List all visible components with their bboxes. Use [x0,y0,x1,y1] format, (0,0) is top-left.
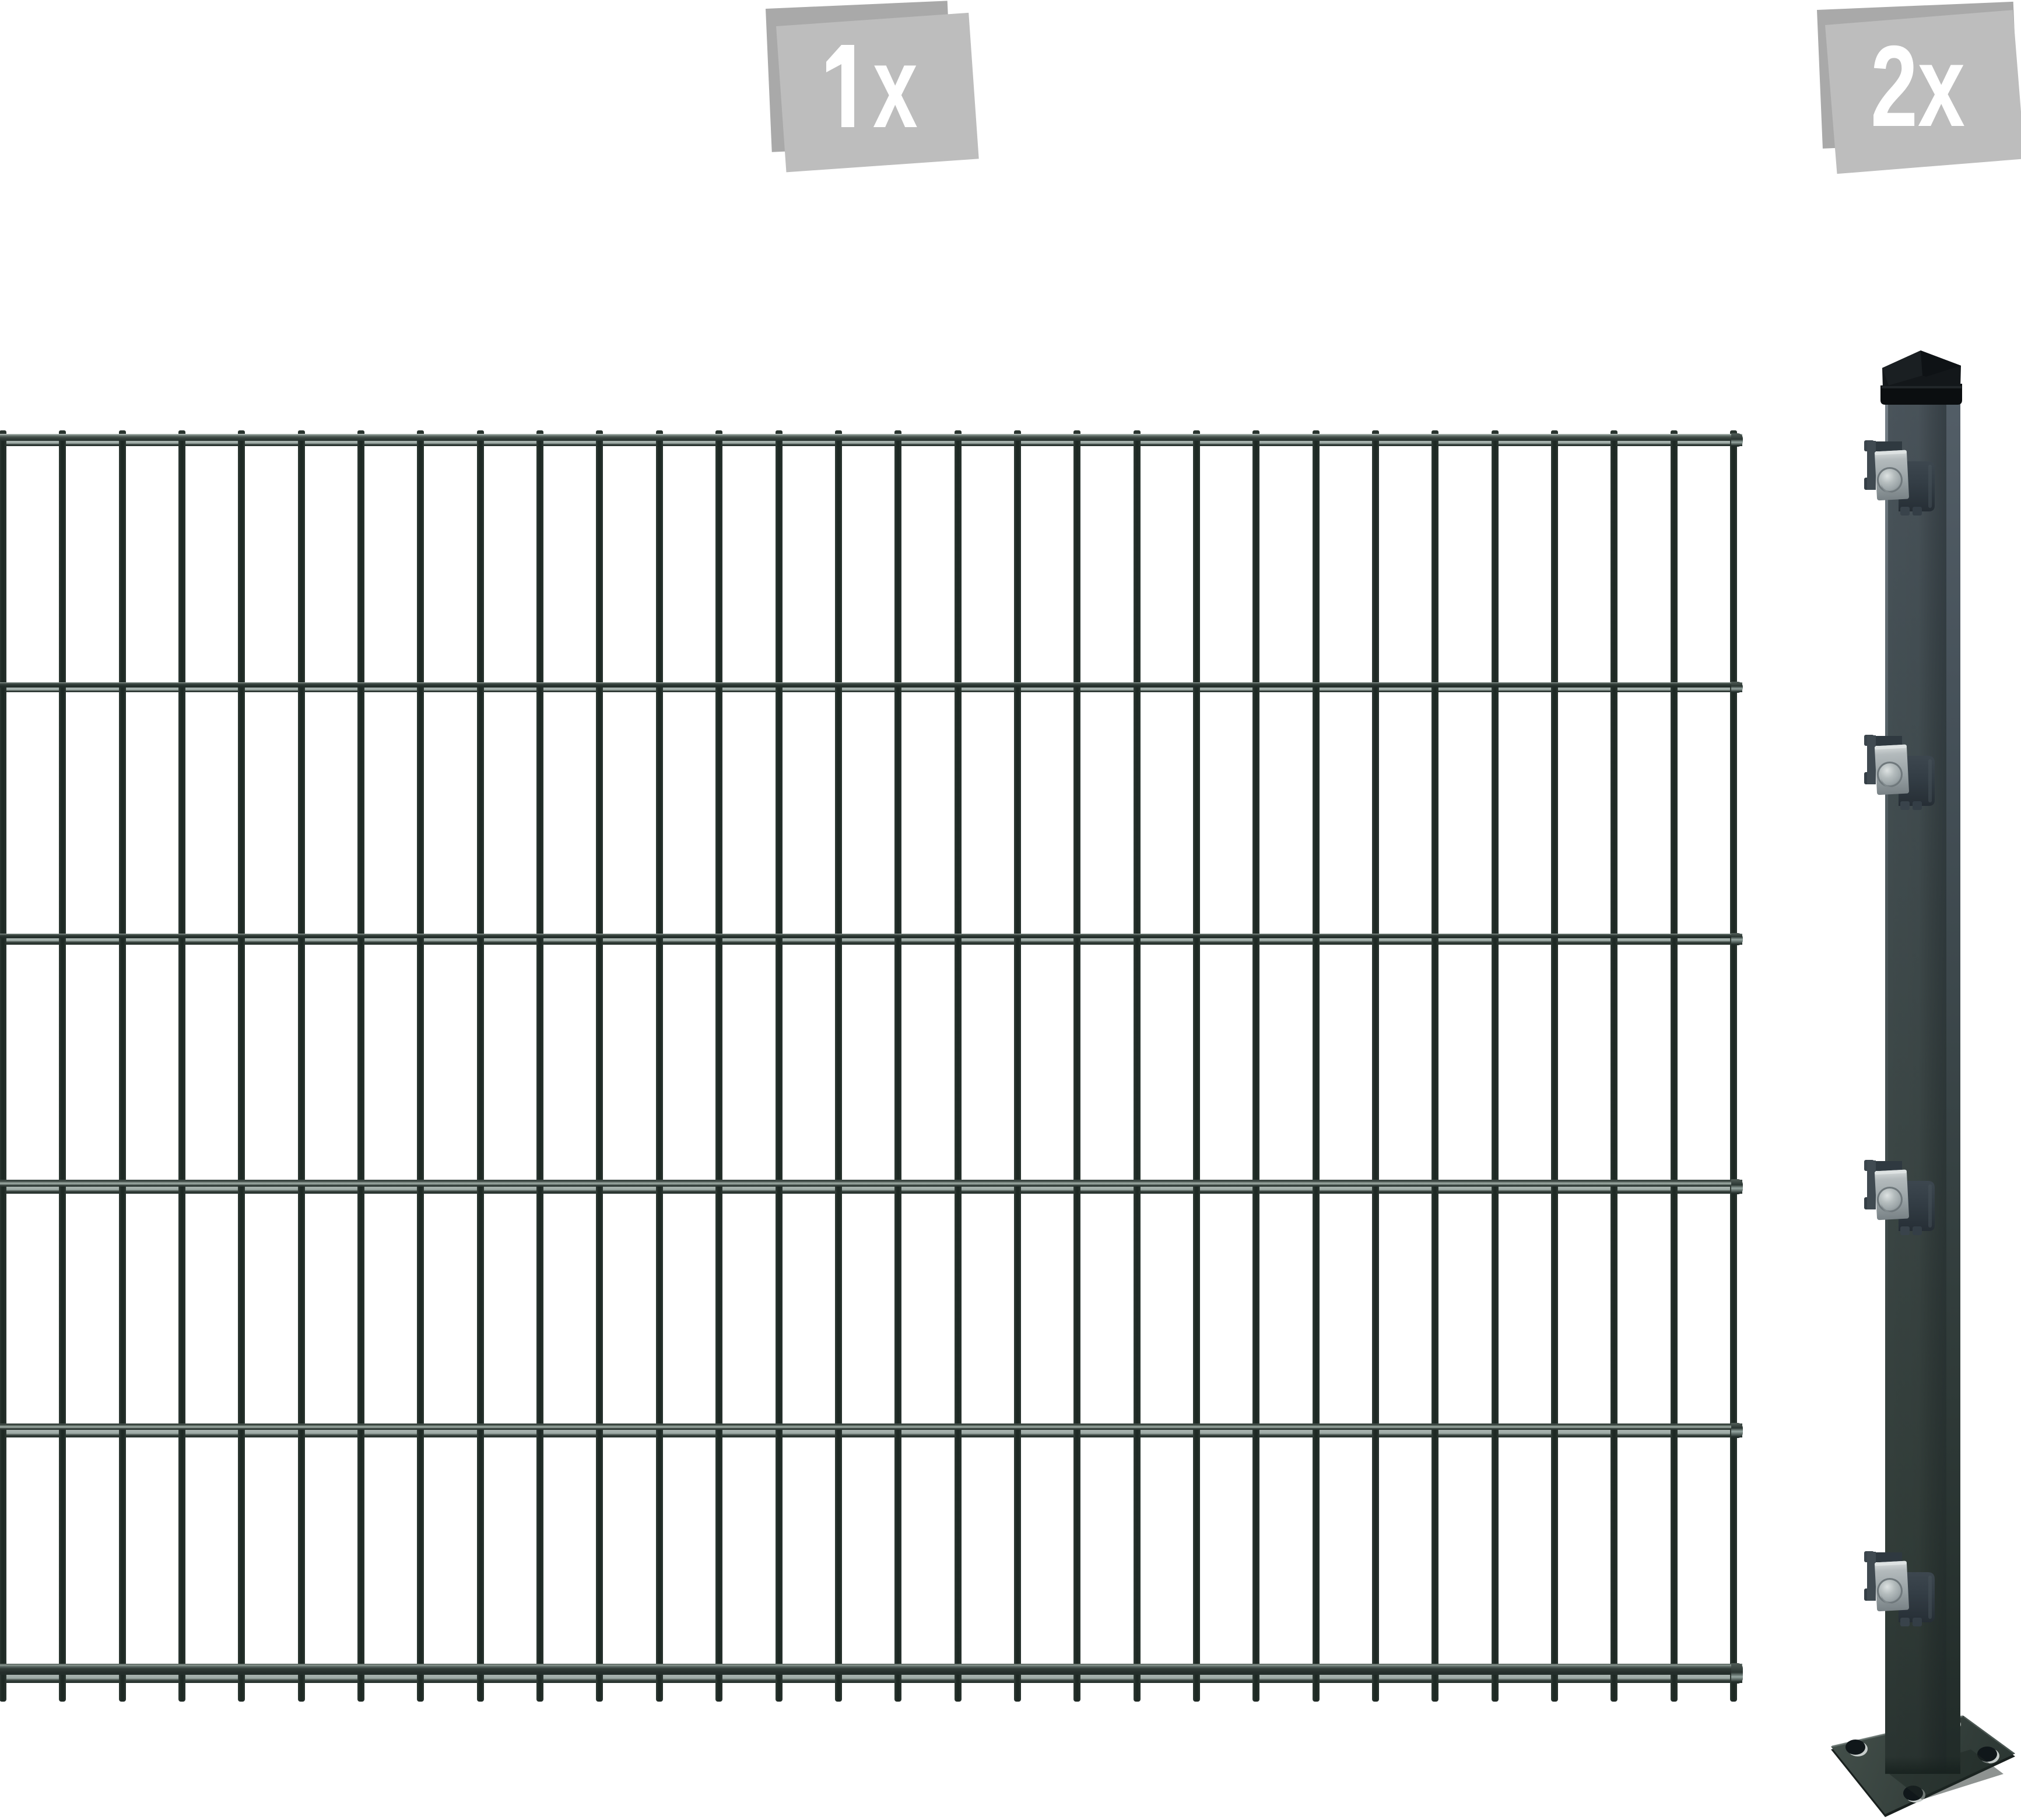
svg-text:2x: 2x [1871,35,1965,150]
svg-text:x: x [873,35,918,152]
